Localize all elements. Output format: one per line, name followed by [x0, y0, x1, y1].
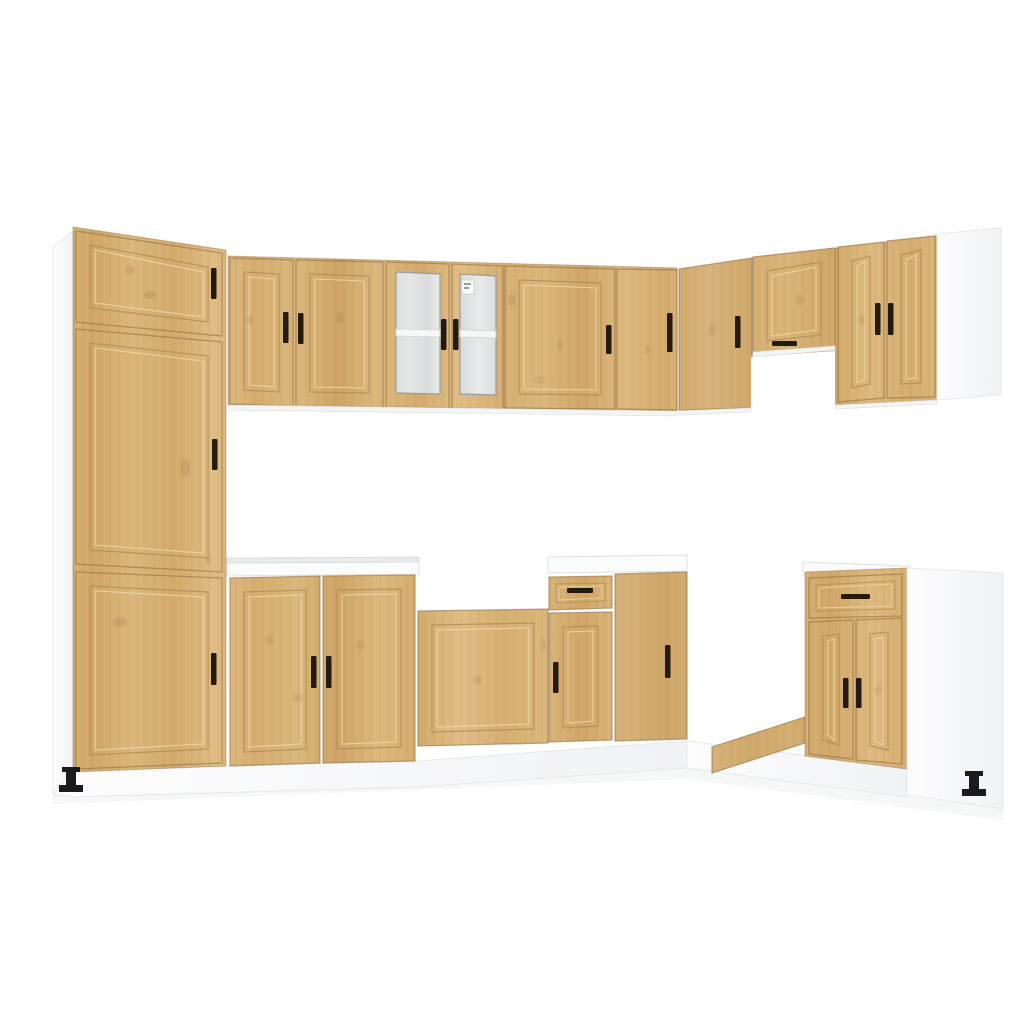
- wood-knot-10: [708, 324, 716, 336]
- wood-knot-6: [508, 294, 516, 306]
- wall-cabinet-door-5-handle: [875, 303, 881, 335]
- wall-cabinet-door-3-handle: [606, 325, 612, 354]
- base-cabinet-door-5-handle: [856, 678, 862, 708]
- wood-knot-12: [859, 315, 865, 325]
- wood-knot-19: [247, 316, 253, 324]
- wood-knot-9: [645, 345, 651, 355]
- upper-corner-door-handle: [735, 316, 741, 348]
- wall-cabinet-door-6-grain: [887, 236, 935, 398]
- wood-knot-15: [205, 556, 211, 564]
- countertop-band-middle: [548, 555, 687, 573]
- product-image: [0, 0, 1024, 1024]
- wall-cabinet-door-4-handle: [667, 313, 673, 352]
- tall-cabinet-middle-door-handle: [212, 439, 218, 470]
- wood-knot-0: [125, 266, 135, 274]
- wood-knot-7: [557, 340, 563, 350]
- wood-knot-13: [473, 676, 483, 684]
- base-cabinet-door-2-handle: [326, 656, 332, 688]
- tall-cabinet-left-side-panel: [53, 231, 73, 794]
- countertop-front-left: [227, 562, 419, 576]
- hood-opening: [751, 351, 835, 414]
- wood-knot-3: [113, 617, 127, 627]
- energy-sticker-mark-1: [464, 283, 471, 285]
- energy-sticker-mark-2: [464, 287, 469, 289]
- wood-knot-8: [540, 639, 546, 651]
- upper-right-end-panel: [937, 228, 1001, 400]
- wood-knot-18: [535, 376, 545, 384]
- drawer-front-left-handle: [567, 588, 593, 593]
- wood-knot-17: [266, 635, 274, 645]
- lower-right-end-panel: [907, 568, 1003, 809]
- wall-cabinet-door-2-grain: [296, 260, 383, 407]
- base-cabinet-door-3-handle: [553, 662, 559, 693]
- tall-cabinet-middle-door-grain: [76, 329, 222, 572]
- wall-cabinet-door-6-handle: [888, 303, 894, 335]
- glass-cabinet-door-right-handle: [453, 319, 459, 350]
- wood-knot-5: [293, 694, 303, 702]
- base-cabinet-door-4-handle: [843, 678, 849, 708]
- over-hood-cabinet-door-grain: [753, 248, 835, 355]
- glass-shelf-left: [396, 329, 440, 337]
- wood-knot-1: [144, 291, 156, 299]
- wood-knot-4: [336, 312, 344, 324]
- base-corner-door-handle: [665, 645, 671, 678]
- wood-knot-16: [874, 686, 882, 694]
- base-corner-door-tint: [615, 572, 687, 741]
- tall-cabinet-bottom-door-handle: [211, 653, 217, 685]
- wall-cabinet-door-3-grain: [505, 266, 615, 409]
- upper-corner-door-tint: [679, 258, 752, 410]
- kitchen-cabinet-set-render: [0, 0, 1024, 1024]
- scene-root: [53, 227, 1003, 820]
- drawer-front-right-handle: [841, 594, 870, 599]
- over-hood-cabinet-door-handle: [772, 341, 797, 346]
- tall-cabinet-top-door-handle: [211, 268, 217, 299]
- wood-knot-14: [356, 640, 364, 650]
- tall-cabinet-bottom-door-grain: [76, 572, 222, 769]
- glass-shelf-right: [460, 330, 496, 338]
- glass-cabinet-door-left-handle: [441, 319, 447, 350]
- wood-knot-2: [180, 459, 190, 477]
- wall-cabinet-door-1-handle: [283, 312, 289, 343]
- base-cabinet-door-1-handle: [311, 656, 317, 688]
- wood-knot-11: [796, 295, 804, 305]
- wall-cabinet-door-2-handle: [298, 313, 304, 344]
